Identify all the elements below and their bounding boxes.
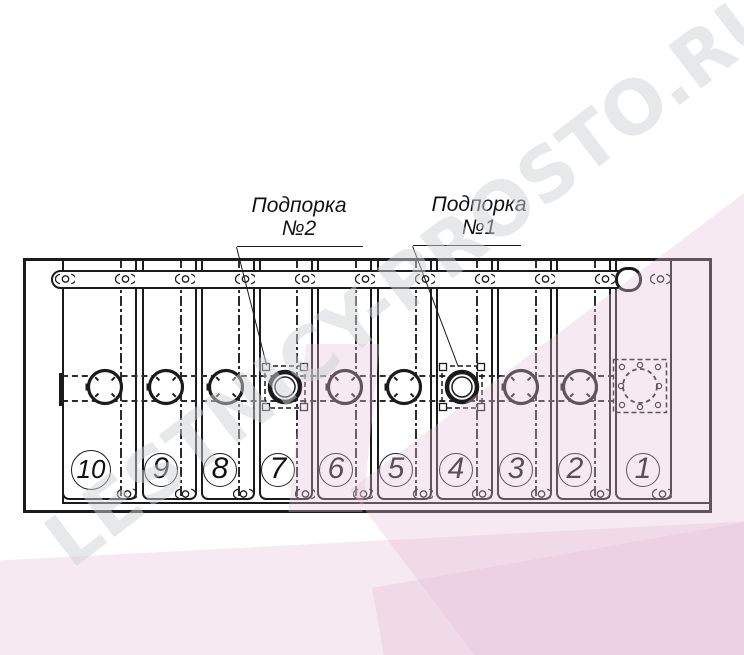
panel-bottom-fastener: [652, 487, 672, 506]
panel-bottom-fastener: [233, 487, 253, 506]
step-number-badge-10: 10: [71, 450, 111, 490]
rail-fastener: [475, 272, 495, 291]
step-number-text: 2: [567, 454, 584, 484]
support2-label: Подпорка №2: [214, 194, 384, 240]
rod-end-cap: [59, 373, 64, 406]
support2-label-underline: [237, 246, 363, 247]
rail-fastener: [650, 272, 670, 291]
step-number-badge-3: 3: [499, 453, 533, 487]
step-rod-circle: [499, 365, 543, 414]
panel-bottom-fastener: [353, 487, 373, 506]
step-number-text: 3: [508, 454, 525, 484]
step-rod-circle: [382, 365, 426, 414]
step-rod-circle: [144, 365, 188, 414]
panel-bottom-fastener: [117, 487, 137, 506]
rail-fastener: [175, 272, 195, 291]
step-number-text: 10: [77, 456, 106, 482]
step-rod-circle: [204, 365, 248, 414]
step-number-badge-5: 5: [379, 453, 413, 487]
step-number-badge-4: 4: [439, 453, 473, 487]
step-rod-circle: [323, 365, 367, 414]
step-number-text: 8: [212, 454, 229, 484]
step-number-text: 5: [388, 454, 405, 484]
support1-label: Подпорка №1: [394, 193, 564, 239]
rail-fastener: [355, 272, 375, 291]
step-number-text: 9: [153, 454, 170, 484]
rail-fastener: [295, 272, 315, 291]
panel-bottom-fastener: [175, 487, 195, 506]
step-number-badge-7: 7: [261, 453, 295, 487]
panel-bottom-fastener: [295, 487, 315, 506]
rail-fastener: [535, 272, 555, 291]
panel-bottom-fastener: [590, 487, 610, 506]
technical-drawing-canvas: 10987654321 Подпорка №2 Подпорка №1 LEST…: [0, 0, 744, 655]
rail-fastener: [55, 272, 75, 291]
step-rod-circle: [83, 365, 127, 414]
step-number-badge-2: 2: [558, 453, 592, 487]
panel-bottom-fastener: [531, 487, 551, 506]
watermark-pink-band-bottom: [0, 518, 744, 655]
support2-label-name: Подпорка: [214, 194, 384, 217]
step-number-text: 6: [328, 454, 345, 484]
support1-label-num: №1: [394, 216, 564, 239]
step-number-text: 1: [635, 454, 652, 484]
support-1-marker: [434, 359, 490, 420]
step-number-text: 7: [270, 454, 287, 484]
panel-bottom-fastener: [472, 487, 492, 506]
step-rod-circle: [558, 365, 602, 414]
step-number-badge-9: 9: [144, 453, 178, 487]
support2-label-num: №2: [214, 217, 384, 240]
anchor-plate-marker: [610, 356, 670, 421]
step-number-text: 4: [448, 454, 465, 484]
step-number-badge-6: 6: [319, 453, 353, 487]
panel-bottom-fastener: [413, 487, 433, 506]
support-2-marker: [257, 359, 313, 420]
support1-label-name: Подпорка: [394, 193, 564, 216]
rail-fastener: [115, 272, 135, 291]
support1-label-underline: [413, 245, 521, 246]
step-number-badge-1: 1: [626, 453, 660, 487]
rail-end-sleeve: [615, 267, 642, 292]
bottom-rail: [62, 502, 712, 513]
step-number-badge-8: 8: [203, 453, 237, 487]
rail-fastener: [595, 272, 615, 291]
watermark-pink-band-bottom-2: [372, 508, 744, 655]
